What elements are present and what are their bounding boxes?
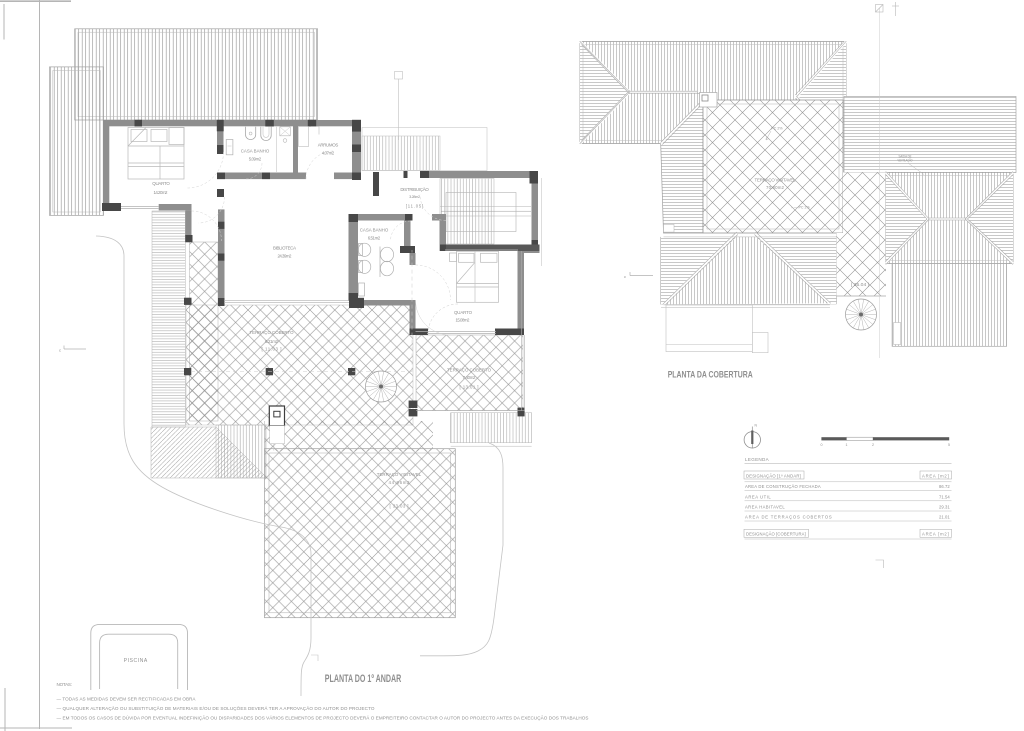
svg-text:AREA [m2]: AREA [m2] [922, 532, 949, 537]
svg-text:29.31: 29.31 [939, 505, 950, 510]
svg-text:c: c [59, 348, 61, 353]
svg-text:BIBLIOTECA: BIBLIOTECA [273, 246, 296, 251]
svg-text:TERRAÇO COBERTO: TERRAÇO COBERTO [447, 368, 492, 373]
svg-text:c: c [624, 274, 626, 279]
svg-text:6.21m2: 6.21m2 [265, 339, 279, 344]
svg-text:— TODAS AS MEDIDAS DEVEM: — TODAS AS MEDIDAS DEVEM SER RECTIFICADA… [57, 697, 197, 702]
svg-text:PC 2%: PC 2% [771, 127, 783, 131]
svg-text:— EM TODOS OS CASOS DE: — EM TODOS OS CASOS DE DÚVIDA POR EVENTU… [57, 714, 589, 720]
svg-text:VENTILAÇÃO: VENTILAÇÃO [898, 158, 913, 163]
svg-text:71.54: 71.54 [939, 494, 950, 499]
svg-text:2: 2 [872, 443, 874, 447]
svg-text:LEGENDA: LEGENDA [745, 457, 770, 462]
svg-text:TERRAÇO VISITAVEL: TERRAÇO VISITAVEL [755, 178, 797, 183]
svg-text:QUARTO: QUARTO [454, 310, 473, 315]
svg-text:DESIGNAÇÃO [1º ANDAR]: DESIGNAÇÃO [1º ANDAR] [746, 473, 801, 478]
svg-text:DESIGNAÇÃO [COBERTURA]: DESIGNAÇÃO [COBERTURA] [746, 532, 806, 537]
svg-text:TERRAÇO COBERTO: TERRAÇO COBERTO [250, 330, 295, 335]
svg-text:[ 11.03 ]: [ 11.03 ] [262, 347, 282, 352]
svg-text:5.09m2: 5.09m2 [249, 157, 262, 162]
svg-text:5: 5 [948, 443, 950, 447]
svg-text:3.28m2: 3.28m2 [409, 195, 420, 199]
svg-text:[ 33.03 ]: [ 33.03 ] [390, 504, 409, 509]
svg-text:44.96m2: 44.96m2 [389, 480, 411, 485]
svg-text:PISCINA: PISCINA [124, 658, 148, 664]
svg-text:ARRUMOS: ARRUMOS [318, 143, 339, 148]
svg-text:DISTRIBUIÇÃO: DISTRIBUIÇÃO [400, 187, 429, 192]
svg-text:AREA DE TERRAÇOS COBERTOS: AREA DE TERRAÇOS COBERTOS [745, 515, 832, 520]
svg-text:6.51m2: 6.51m2 [368, 236, 381, 241]
svg-text:— QUALQUER ALTERAÇÃO OU S: — QUALQUER ALTERAÇÃO OU SUBSTITUIÇÃO DE … [57, 705, 375, 711]
svg-text:[ 13.01 ]: [ 13.01 ] [460, 385, 479, 390]
svg-text:[11.05]: [11.05] [406, 204, 424, 209]
svg-text:24.39m2: 24.39m2 [278, 254, 293, 259]
svg-text:14.20m2: 14.20m2 [154, 190, 169, 195]
svg-text:AREA DE CONSTRUÇÃO FECHADA: AREA DE CONSTRUÇÃO FECHADA [745, 484, 821, 489]
svg-text:AREA [m2]: AREA [m2] [922, 473, 949, 478]
svg-text:PLANTA DO 1º ANDAR: PLANTA DO 1º ANDAR [325, 673, 402, 685]
svg-text:[ 35.04 ]: [ 35.04 ] [851, 282, 869, 287]
svg-text:PLANTA DA COBERTURA: PLANTA DA COBERTURA [668, 370, 753, 380]
svg-text:CASA BANHO: CASA BANHO [360, 228, 389, 233]
svg-text:0: 0 [821, 443, 823, 447]
svg-text:NOTAS:: NOTAS: [57, 682, 73, 687]
svg-text:21.01: 21.01 [939, 515, 950, 520]
svg-text:1: 1 [846, 443, 848, 447]
svg-text:QUARTO: QUARTO [152, 181, 170, 186]
svg-text:86.72: 86.72 [939, 484, 950, 489]
svg-text:AREA UTIL: AREA UTIL [745, 494, 771, 499]
svg-text:AREA HABITAVEL: AREA HABITAVEL [745, 505, 785, 510]
svg-text:CASA BANHO: CASA BANHO [241, 149, 270, 154]
svg-text:←— PC 2%: ←— PC 2% [790, 206, 810, 210]
svg-text:15.08m2: 15.08m2 [456, 318, 471, 323]
svg-text:7.40m2: 7.40m2 [463, 375, 477, 380]
svg-text:4.07m2: 4.07m2 [322, 151, 335, 156]
svg-text:70.80m2: 70.80m2 [766, 185, 785, 190]
svg-text:TERRAÇO VISITAVEL: TERRAÇO VISITAVEL [377, 472, 422, 477]
